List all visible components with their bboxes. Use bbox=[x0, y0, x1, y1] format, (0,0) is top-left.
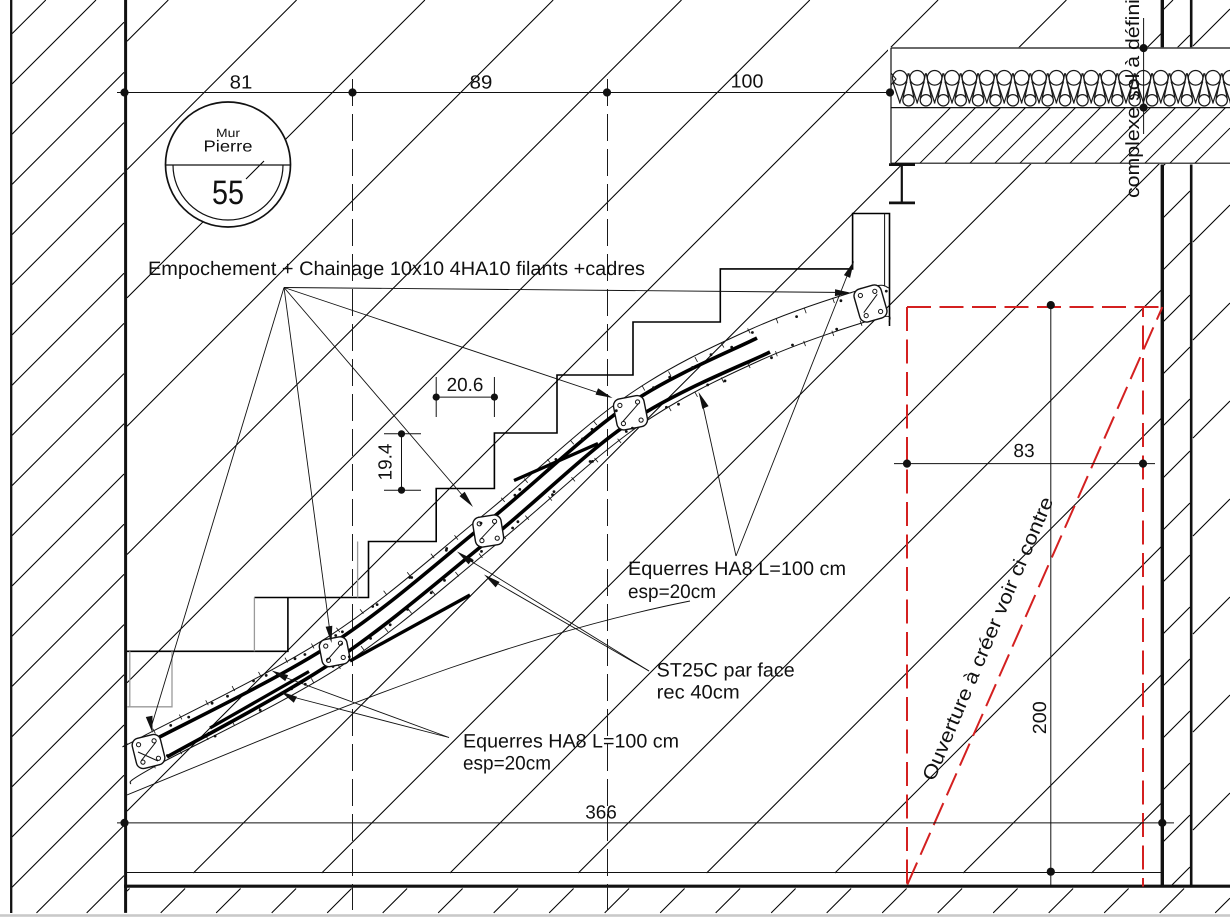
svg-text:Equerres HA8 L=100 cm: Equerres HA8 L=100 cm bbox=[463, 731, 679, 753]
svg-text:81: 81 bbox=[230, 73, 253, 94]
svg-text:200: 200 bbox=[1030, 701, 1051, 734]
svg-text:Equerres HA8 L=100 cm: Equerres HA8 L=100 cm bbox=[628, 558, 846, 580]
svg-text:esp=20cm: esp=20cm bbox=[463, 753, 551, 775]
svg-text:89: 89 bbox=[470, 73, 493, 94]
svg-text:100: 100 bbox=[731, 72, 764, 93]
svg-text:esp=20cm: esp=20cm bbox=[628, 581, 716, 603]
svg-text:366: 366 bbox=[585, 803, 617, 824]
svg-text:19.4: 19.4 bbox=[376, 443, 397, 480]
svg-text:ST25C par face: ST25C par face bbox=[657, 660, 795, 682]
svg-text:complexe sol à définir: complexe sol à définir bbox=[1123, 0, 1144, 198]
svg-text:rec 40cm: rec 40cm bbox=[657, 682, 740, 704]
svg-text:55: 55 bbox=[212, 174, 244, 212]
svg-text:Empochement + Chainage 10x10 4: Empochement + Chainage 10x10 4HA10 filan… bbox=[148, 258, 645, 280]
svg-text:83: 83 bbox=[1013, 441, 1034, 462]
svg-text:20.6: 20.6 bbox=[447, 375, 484, 396]
svg-text:Pierre: Pierre bbox=[204, 139, 253, 156]
